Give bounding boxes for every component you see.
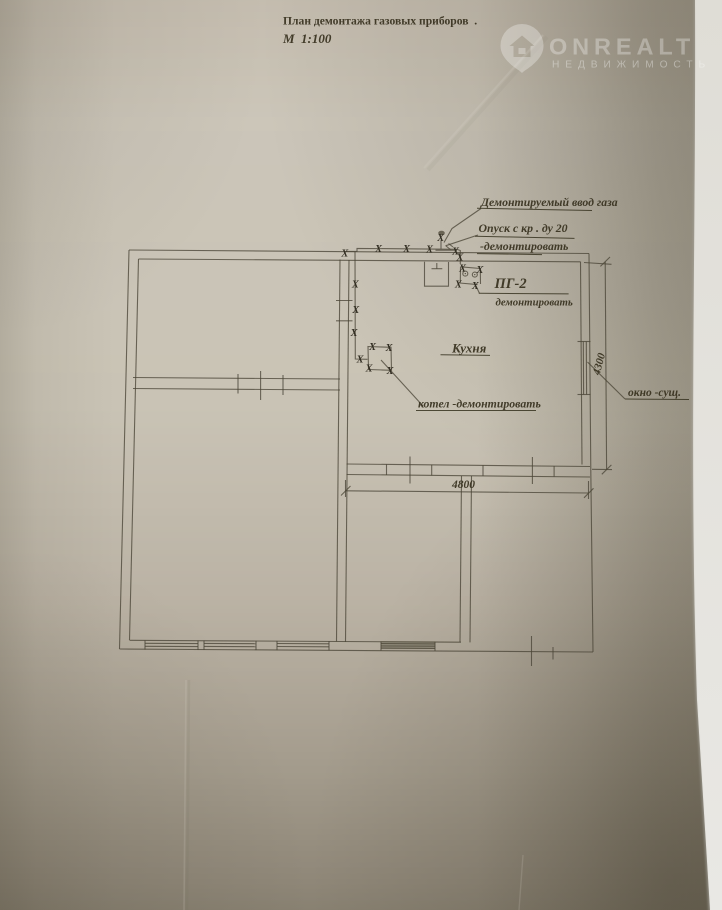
svg-text:ПГ-2: ПГ-2 bbox=[494, 276, 527, 292]
svg-text:Демонтируемый ввод газа: Демонтируемый ввод газа bbox=[480, 195, 618, 209]
svg-text:4800: 4800 bbox=[451, 479, 475, 491]
svg-text:НЕДВИЖИМОСТЬ: НЕДВИЖИМОСТЬ bbox=[552, 60, 711, 71]
svg-text:окно -сущ.: окно -сущ. bbox=[628, 387, 681, 399]
svg-text:-демонтировать: -демонтировать bbox=[480, 239, 569, 253]
svg-text:котел -демонтировать: котел -демонтировать bbox=[418, 397, 541, 411]
svg-text:демонтировать: демонтировать bbox=[496, 297, 573, 309]
svg-text:Опуск с кр . ду 20: Опуск с кр . ду 20 bbox=[479, 221, 568, 235]
svg-text:М 1:100: М 1:100 bbox=[282, 31, 332, 46]
svg-text:Кухня: Кухня bbox=[451, 341, 487, 356]
svg-text:ONREALT: ONREALT bbox=[549, 34, 695, 60]
svg-text:План демонтажа газовых приборо: План демонтажа газовых приборов . bbox=[283, 15, 477, 28]
